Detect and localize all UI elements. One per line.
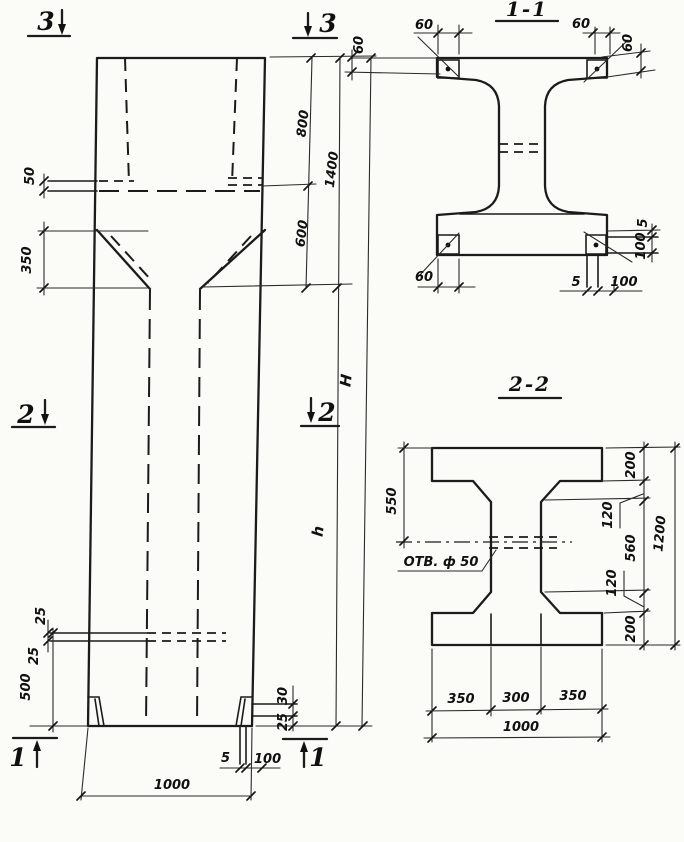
hole-label: ОТВ. ф 50 — [404, 555, 479, 570]
dim-H-label: H — [336, 373, 355, 388]
mark-2-left-arrow — [41, 414, 49, 425]
ledge-slot-lines — [48, 181, 147, 641]
section-mark-1-right: 1 — [283, 739, 327, 772]
section-mark-1-left: 1 — [9, 738, 57, 772]
hidden-top-cavity — [111, 58, 251, 283]
plate-anchor-diagonals — [418, 37, 632, 277]
mark-1-right-arrow — [300, 741, 308, 752]
dim-60-tr-h-label: 60 — [621, 34, 636, 52]
section-2-2-outline — [432, 448, 602, 645]
dim-25-bottom-label: 25 — [27, 647, 42, 665]
dim-25-top-label: 25 — [34, 607, 49, 625]
section-2-2-title: 2-2 — [508, 372, 551, 396]
web-hole-hidden — [499, 144, 545, 152]
dim-5-right-label: 5 — [636, 218, 651, 227]
dim-600-label: 600 — [293, 219, 311, 248]
dim-5-base-label: 5 — [221, 751, 230, 766]
dim-350-right-label: 350 — [559, 689, 586, 704]
section-1-1-title: 1-1 — [506, 0, 548, 21]
extension-lines — [30, 56, 376, 800]
section-1-1: 1-1 60 60 60 60 60 5 100 5 100 — [345, 0, 660, 293]
drawing-sheet: 50 350 800 1400 600 H h 25 25 500 30 25 … — [0, 0, 684, 842]
dim-120-bottom-label: 120 — [605, 569, 620, 596]
mark-2-right-arrow — [307, 412, 315, 423]
dim-30-foot-label: 30 — [276, 687, 291, 705]
dim-60-tl-h-label: 60 — [352, 36, 367, 54]
section-mark-3-right: 3 — [293, 9, 337, 38]
section-mark-3-left: 3 — [28, 7, 70, 36]
mark-3-left-label: 3 — [37, 7, 54, 36]
mark-3-left-arrow — [58, 24, 66, 35]
dim-60-bl-label: 60 — [415, 270, 433, 285]
section-mark-2-left: 2 — [12, 400, 55, 429]
dim-100-right-label: 100 — [634, 232, 649, 259]
hidden-slot-segments — [99, 178, 262, 641]
dim-560-label: 560 — [624, 534, 639, 561]
dim-550-label: 550 — [385, 487, 400, 514]
section-mark-2-right: 2 — [301, 398, 339, 427]
dim-100-bottom-label: 100 — [610, 275, 637, 290]
dim-120-top-label: 120 — [601, 501, 616, 528]
mark-1-right-label: 1 — [309, 743, 326, 772]
drawing-canvas: 50 350 800 1400 600 H h 25 25 500 30 25 … — [0, 0, 684, 842]
dim-500-label: 500 — [19, 673, 34, 700]
dim-1000-bottom-label: 1000 — [503, 720, 539, 735]
dim-1200-label: 1200 — [651, 515, 669, 552]
elevation-view: 50 350 800 1400 600 H h 25 25 500 30 25 … — [9, 7, 376, 800]
dim-350-left-label: 350 — [447, 692, 474, 707]
dim-1000-label: 1000 — [154, 778, 190, 793]
mark-2-right-label: 2 — [317, 398, 335, 427]
section-2-2-dim-lines — [398, 442, 680, 742]
dim-50-label: 50 — [23, 167, 38, 185]
mark-3-right-label: 3 — [319, 9, 336, 38]
dim-200-top-label: 200 — [624, 451, 639, 478]
mark-1-left-arrow — [33, 740, 41, 751]
dim-300-label: 300 — [502, 691, 529, 706]
section-1-1-outline — [437, 58, 607, 255]
dim-60-tr-w-label: 60 — [572, 17, 590, 32]
mark-2-left-label: 2 — [16, 400, 34, 429]
dim-200-bottom-label: 200 — [624, 615, 639, 642]
dim-h-label: h — [308, 525, 327, 538]
dimension-ticks — [40, 29, 679, 800]
plate-anchor-dot-br — [594, 243, 599, 248]
dim-350-label: 350 — [20, 246, 35, 273]
hidden-web-edges — [99, 191, 260, 726]
mark-3-right-arrow — [304, 26, 312, 37]
column-outline — [88, 58, 265, 726]
web-edges-in-flange — [491, 614, 541, 645]
dim-25-foot-label: 25 — [276, 713, 291, 731]
dim-5-bottom-label: 5 — [571, 275, 580, 290]
dim-100-base-label: 100 — [254, 752, 281, 767]
dim-60-tl-w-label: 60 — [415, 18, 433, 33]
mark-1-left-label: 1 — [9, 743, 26, 772]
section-2-2: 2-2 ОТВ. ф 50 550 200 120 560 120 200 12… — [385, 372, 680, 742]
